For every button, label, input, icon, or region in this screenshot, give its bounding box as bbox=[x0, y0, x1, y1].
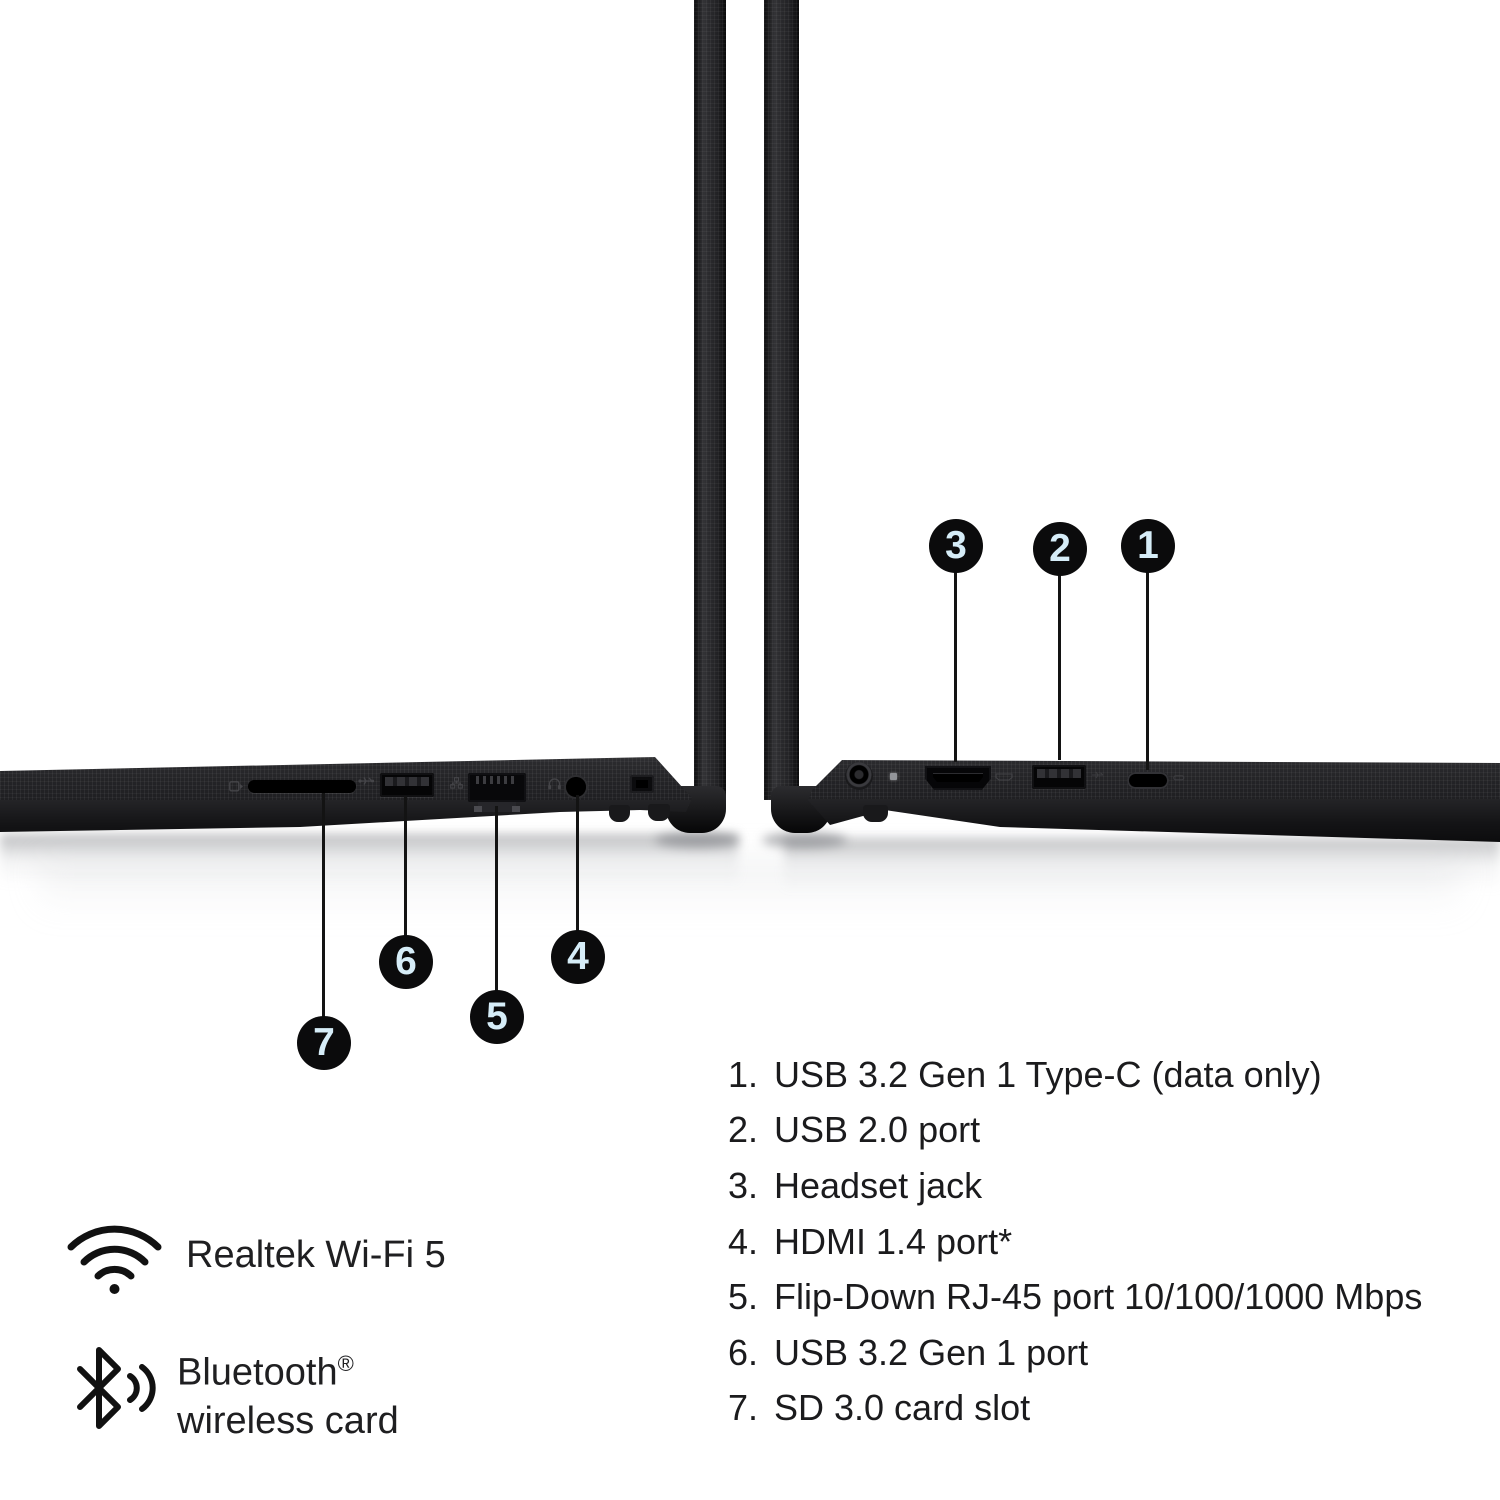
headset-icon bbox=[547, 777, 562, 791]
callout-line-4 bbox=[576, 795, 579, 931]
usb-c-icon bbox=[1173, 775, 1185, 781]
legend-item: 4.HDMI 1.4 port* bbox=[728, 1214, 1448, 1270]
reflection-haze bbox=[40, 858, 1460, 928]
bluetooth-icon bbox=[68, 1342, 158, 1439]
legend-label: Flip-Down RJ-45 port 10/100/1000 Mbps bbox=[774, 1276, 1422, 1318]
power-jack bbox=[845, 762, 873, 790]
legend-number: 3. bbox=[728, 1165, 774, 1207]
callout-line-2 bbox=[1058, 574, 1061, 760]
usb-ss-icon bbox=[1091, 771, 1105, 779]
headset-jack bbox=[566, 777, 586, 797]
legend-item: 7.SD 3.0 card slot bbox=[728, 1381, 1448, 1437]
laptop-lid-right bbox=[764, 0, 799, 800]
callout-line-7 bbox=[322, 793, 325, 1017]
legend-item: 2.USB 2.0 port bbox=[728, 1103, 1448, 1159]
usb-a-port bbox=[380, 773, 434, 797]
callout-badge-5: 5 bbox=[470, 990, 524, 1044]
callout-badge-7: 7 bbox=[297, 1016, 351, 1070]
security-lock-slot bbox=[630, 775, 654, 793]
legend-item: 1.USB 3.2 Gen 1 Type-C (data only) bbox=[728, 1047, 1448, 1103]
rubber-foot bbox=[863, 805, 888, 822]
legend-item: 6.USB 3.2 Gen 1 port bbox=[728, 1325, 1448, 1381]
bluetooth-label: Bluetooth® wireless card bbox=[177, 1340, 399, 1445]
callout-badge-6: 6 bbox=[379, 935, 433, 989]
status-led bbox=[890, 773, 897, 780]
usb-a-tongue bbox=[385, 777, 429, 786]
legend-number: 6. bbox=[728, 1332, 774, 1374]
rubber-foot bbox=[609, 805, 630, 822]
callout-line-6 bbox=[404, 796, 407, 936]
callout-badge-2: 2 bbox=[1033, 522, 1087, 576]
sd-card-icon bbox=[229, 781, 243, 792]
rj45-pins bbox=[476, 776, 518, 784]
usb-a-tongue bbox=[1037, 769, 1081, 778]
legend-number: 4. bbox=[728, 1221, 774, 1263]
legend-label: HDMI 1.4 port* bbox=[774, 1221, 1012, 1263]
laptop-body-left-view bbox=[0, 754, 700, 838]
bluetooth-label-line2: wireless card bbox=[177, 1397, 399, 1445]
legend-item: 5.Flip-Down RJ-45 port 10/100/1000 Mbps bbox=[728, 1269, 1448, 1325]
legend-item: 3.Headset jack bbox=[728, 1158, 1448, 1214]
legend-label: USB 3.2 Gen 1 Type-C (data only) bbox=[774, 1054, 1322, 1096]
sd-card-slot bbox=[248, 780, 356, 793]
port-legend: 1.USB 3.2 Gen 1 Type-C (data only) 2.USB… bbox=[728, 1047, 1448, 1436]
product-diagram: 1 2 3 4 5 6 7 1.USB 3.2 Gen 1 Type-C (da… bbox=[0, 0, 1500, 1500]
wifi-icon bbox=[62, 1211, 167, 1300]
bluetooth-label-line1: Bluetooth bbox=[177, 1352, 338, 1394]
wifi-label: Realtek Wi-Fi 5 bbox=[186, 1234, 446, 1277]
registered-mark: ® bbox=[338, 1351, 354, 1376]
legend-label: USB 3.2 Gen 1 port bbox=[774, 1332, 1088, 1374]
lock-slot-opening bbox=[636, 780, 648, 788]
hdmi-opening bbox=[933, 773, 983, 782]
hinge-shadow-left bbox=[655, 832, 740, 848]
legend-number: 2. bbox=[728, 1109, 774, 1151]
hdmi-icon bbox=[995, 773, 1013, 781]
legend-number: 5. bbox=[728, 1276, 774, 1318]
usb-icon bbox=[358, 775, 375, 787]
rubber-foot bbox=[648, 804, 670, 821]
legend-label: Headset jack bbox=[774, 1165, 982, 1207]
legend-number: 1. bbox=[728, 1054, 774, 1096]
callout-line-5 bbox=[495, 806, 498, 991]
callout-badge-4: 4 bbox=[551, 930, 605, 984]
callout-line-1 bbox=[1146, 572, 1149, 770]
callout-line-3 bbox=[954, 572, 957, 762]
usb-a-port bbox=[1032, 765, 1086, 789]
network-icon bbox=[450, 777, 463, 789]
hinge-shadow-right bbox=[762, 832, 847, 848]
callout-badge-1: 1 bbox=[1121, 519, 1175, 573]
legend-label: SD 3.0 card slot bbox=[774, 1387, 1030, 1429]
legend-label: USB 2.0 port bbox=[774, 1109, 980, 1151]
rj45-port bbox=[468, 773, 526, 802]
laptop-lid-left bbox=[694, 0, 726, 800]
usb-c-port bbox=[1127, 772, 1169, 789]
hdmi-port bbox=[925, 766, 991, 790]
callout-badge-3: 3 bbox=[929, 519, 983, 573]
legend-number: 7. bbox=[728, 1387, 774, 1429]
